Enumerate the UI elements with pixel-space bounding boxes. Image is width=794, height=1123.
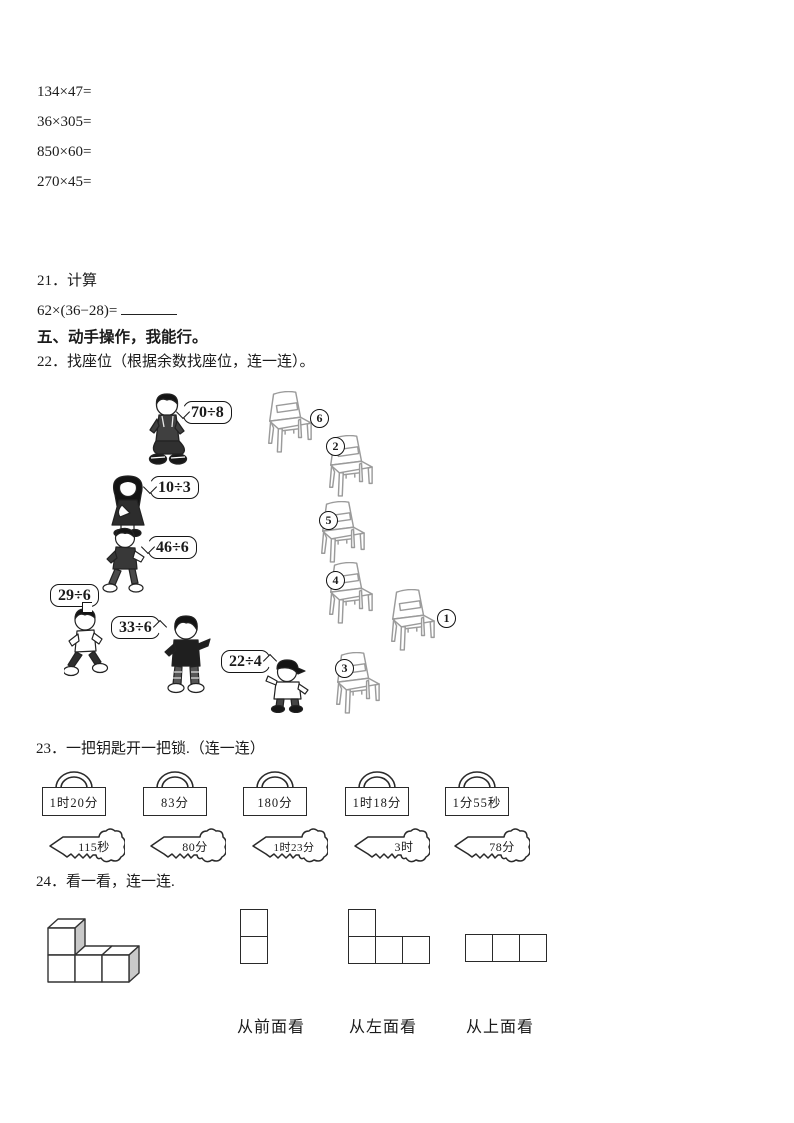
chair-number-badge[interactable]: 5 xyxy=(319,511,338,530)
key-label: 78分 xyxy=(489,840,515,854)
lock-label: 1分55秒 xyxy=(445,787,509,816)
grid-cell xyxy=(403,937,430,964)
lock-figure[interactable]: 1时18分 xyxy=(345,766,409,816)
division-bubble[interactable]: 33÷6 xyxy=(111,616,160,639)
q22-figure: 70÷8 10÷3 46÷6 29÷6 33÷6 22÷4 6 xyxy=(40,385,470,720)
lock-shackle-icon xyxy=(355,766,399,788)
lock-label: 1时20分 xyxy=(42,787,106,816)
grid-cell xyxy=(493,935,520,962)
view-label-top: 从上面看 xyxy=(466,1013,534,1037)
section5-title: 五、动手操作，我能行。 xyxy=(37,325,208,347)
key-label: 115秒 xyxy=(78,840,110,854)
chair-icon xyxy=(262,391,314,457)
grid-cell xyxy=(241,910,268,937)
grid-cell xyxy=(349,937,376,964)
front-view-grid[interactable] xyxy=(240,909,268,964)
chair-number-badge[interactable]: 1 xyxy=(437,609,456,628)
chair-number-badge[interactable]: 2 xyxy=(326,437,345,456)
lock-shackle-icon xyxy=(52,766,96,788)
division-bubble[interactable]: 70÷8 xyxy=(183,401,232,424)
chair-number-badge[interactable]: 3 xyxy=(335,659,354,678)
grid-cell xyxy=(241,937,268,964)
grid-cell xyxy=(349,910,376,937)
chair-number-badge[interactable]: 4 xyxy=(326,571,345,590)
key-label: 1时23分 xyxy=(274,841,315,854)
chair-number-badge[interactable]: 6 xyxy=(310,409,329,428)
lock-figure[interactable]: 83分 xyxy=(143,766,207,816)
view-label-left: 从左面看 xyxy=(349,1013,417,1037)
grid-cell xyxy=(466,935,493,962)
key-label: 80分 xyxy=(182,840,208,854)
key-figure[interactable]: 1时23分 xyxy=(250,828,328,864)
calc-problem: 134×47= xyxy=(37,84,91,101)
division-bubble[interactable]: 10÷3 xyxy=(150,476,199,499)
key-label: 3时 xyxy=(394,840,413,854)
grid-cell xyxy=(376,937,403,964)
lock-label: 83分 xyxy=(143,787,207,816)
key-figure[interactable]: 80分 xyxy=(148,828,226,864)
running-boy-icon xyxy=(64,605,114,683)
grid-cell-empty xyxy=(403,910,430,937)
chair-icon xyxy=(385,589,437,655)
worksheet-page: 134×47= 36×305= 850×60= 270×45= 21．计算 62… xyxy=(0,0,794,1123)
lock-figure[interactable]: 1时20分 xyxy=(42,766,106,816)
chair-figure[interactable] xyxy=(262,391,314,462)
grid-cell-empty xyxy=(376,910,403,937)
q21-label: 21．计算 xyxy=(37,269,97,290)
division-bubble[interactable]: 46÷6 xyxy=(148,536,197,559)
grid-cell xyxy=(520,935,547,962)
view-label-front: 从前面看 xyxy=(237,1013,305,1037)
lock-figure[interactable]: 180分 xyxy=(243,766,307,816)
lock-shackle-icon xyxy=(253,766,297,788)
lock-label: 180分 xyxy=(243,787,307,816)
chair-figure[interactable] xyxy=(385,589,437,660)
key-outline-icon xyxy=(355,829,430,862)
cube-stack-figure[interactable] xyxy=(45,915,143,985)
child-figure-running-boy[interactable] xyxy=(64,605,114,688)
lock-shackle-icon xyxy=(153,766,197,788)
lock-label: 1时18分 xyxy=(345,787,409,816)
top-view-grid[interactable] xyxy=(465,934,547,962)
answer-blank[interactable] xyxy=(121,300,177,315)
left-view-grid[interactable] xyxy=(348,909,430,964)
calc-problem: 270×45= xyxy=(37,174,91,191)
q24-title: 24．看一看，连一连. xyxy=(36,870,175,891)
key-figure[interactable]: 115秒 xyxy=(47,828,125,864)
calc-problem: 36×305= xyxy=(37,114,91,131)
child-figure-walking[interactable] xyxy=(95,525,150,600)
walking-child-icon xyxy=(95,525,150,595)
lock-shackle-icon xyxy=(455,766,499,788)
q21-expression-row: 62×(36−28)= xyxy=(37,300,177,320)
lock-figure[interactable]: 1分55秒 xyxy=(445,766,509,816)
q21-expression: 62×(36−28)= xyxy=(37,303,117,319)
q22-title: 22．找座位（根据余数找座位，连一连）。 xyxy=(37,350,315,371)
chair-icon xyxy=(315,501,367,567)
calc-problem: 850×60= xyxy=(37,144,91,161)
q23-title: 23．一把钥匙开一把锁.（连一连） xyxy=(36,737,265,758)
division-bubble[interactable]: 22÷4 xyxy=(221,650,270,673)
division-bubble[interactable]: 29÷6 xyxy=(50,584,99,607)
key-figure[interactable]: 3时 xyxy=(352,828,430,864)
key-figure[interactable]: 78分 xyxy=(452,828,530,864)
